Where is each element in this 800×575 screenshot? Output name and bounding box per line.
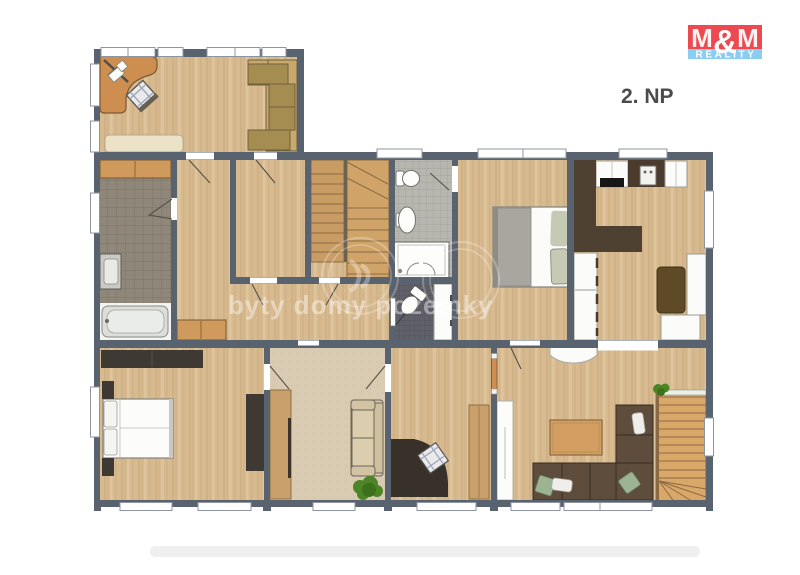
svg-text:REALITY: REALITY [696, 50, 757, 61]
svg-text:M: M [691, 23, 713, 53]
svg-text:byty domy pozemky: byty domy pozemky [228, 290, 494, 320]
svg-text:2. NP: 2. NP [621, 85, 674, 108]
svg-text:M: M [737, 23, 759, 53]
